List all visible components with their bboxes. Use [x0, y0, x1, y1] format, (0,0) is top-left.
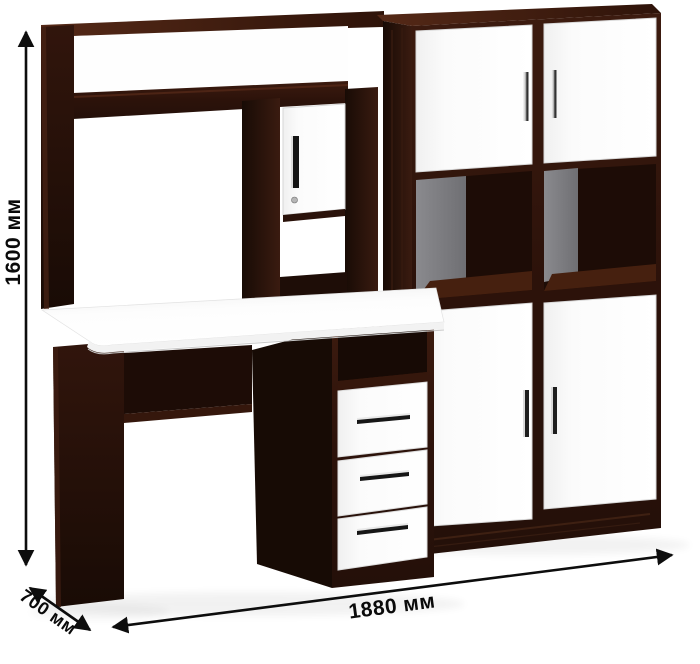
hutch-unit [41, 11, 384, 309]
hutch-door-handle [291, 136, 293, 188]
cabinet-door-top-right [544, 18, 656, 163]
desk-pedestal-side [252, 329, 332, 588]
desk-left-panel [53, 341, 124, 607]
furniture-illustration [0, 0, 700, 664]
desk-drawer-2 [338, 450, 427, 516]
cabinet-handle-top-right [551, 70, 555, 118]
cabinet-door-top-left [416, 25, 532, 172]
cabinet-handle-bottom-left [523, 390, 525, 437]
cabinet-door-bottom-right [544, 295, 656, 509]
desk-back-panel [124, 345, 252, 414]
height-dimension-label: 1600 мм [2, 192, 26, 292]
hutch-divider [242, 98, 280, 306]
hutch-door-lock [292, 197, 298, 203]
cabinet-handle-top-left [523, 72, 527, 121]
cabinet-handle-bottom-right [551, 387, 553, 434]
furniture-dimension-diagram: 1600 мм 700 мм 1880 мм [0, 0, 700, 664]
hutch-right-panel [345, 87, 378, 303]
desk-unit [42, 288, 444, 607]
